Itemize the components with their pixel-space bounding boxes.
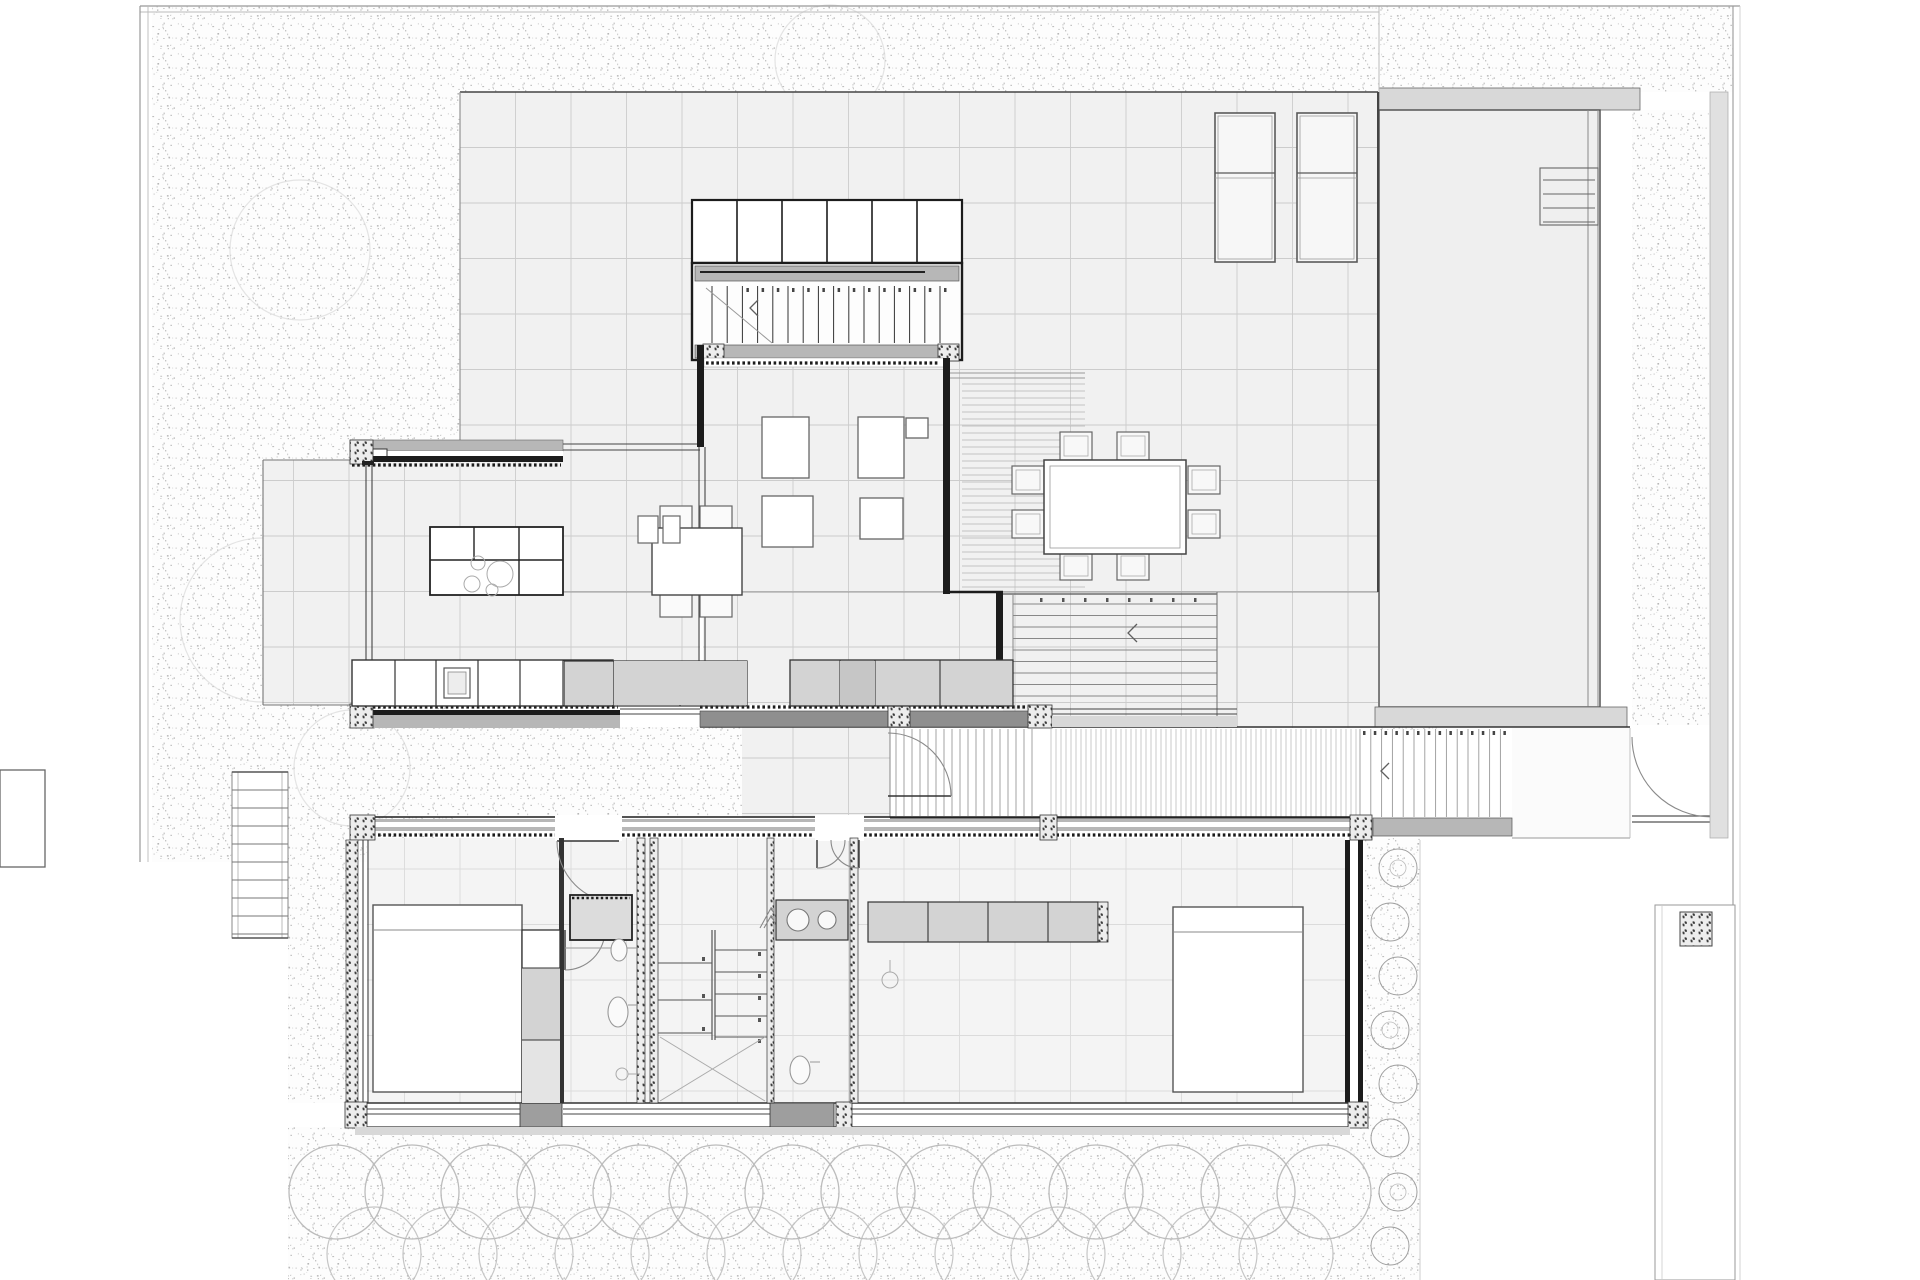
bed-west xyxy=(373,905,522,1092)
pool-bottom-deck-band xyxy=(1375,707,1627,727)
pool-top-deck-band xyxy=(1379,88,1640,110)
utility-box xyxy=(0,770,45,867)
closet-row-east xyxy=(868,902,1108,942)
wardrobe-column xyxy=(522,930,560,1103)
sun-lounger xyxy=(1215,113,1275,262)
sun-lounger xyxy=(1297,113,1357,262)
kitchen-counter xyxy=(352,660,747,706)
pool-basin xyxy=(1379,110,1600,707)
west-side-steps xyxy=(232,772,288,938)
storage-bench xyxy=(790,660,1013,706)
floor-plan-page xyxy=(0,0,1920,1280)
driveway-strip xyxy=(1655,905,1735,1280)
shower-tray xyxy=(570,895,632,940)
swimming-pool xyxy=(1375,6,1640,727)
outdoor-table xyxy=(1044,460,1186,554)
bed-east xyxy=(1173,907,1303,1092)
floor-plan-svg xyxy=(0,0,1920,1280)
kitchen-island xyxy=(430,527,563,596)
stair-pavilion xyxy=(692,200,962,367)
